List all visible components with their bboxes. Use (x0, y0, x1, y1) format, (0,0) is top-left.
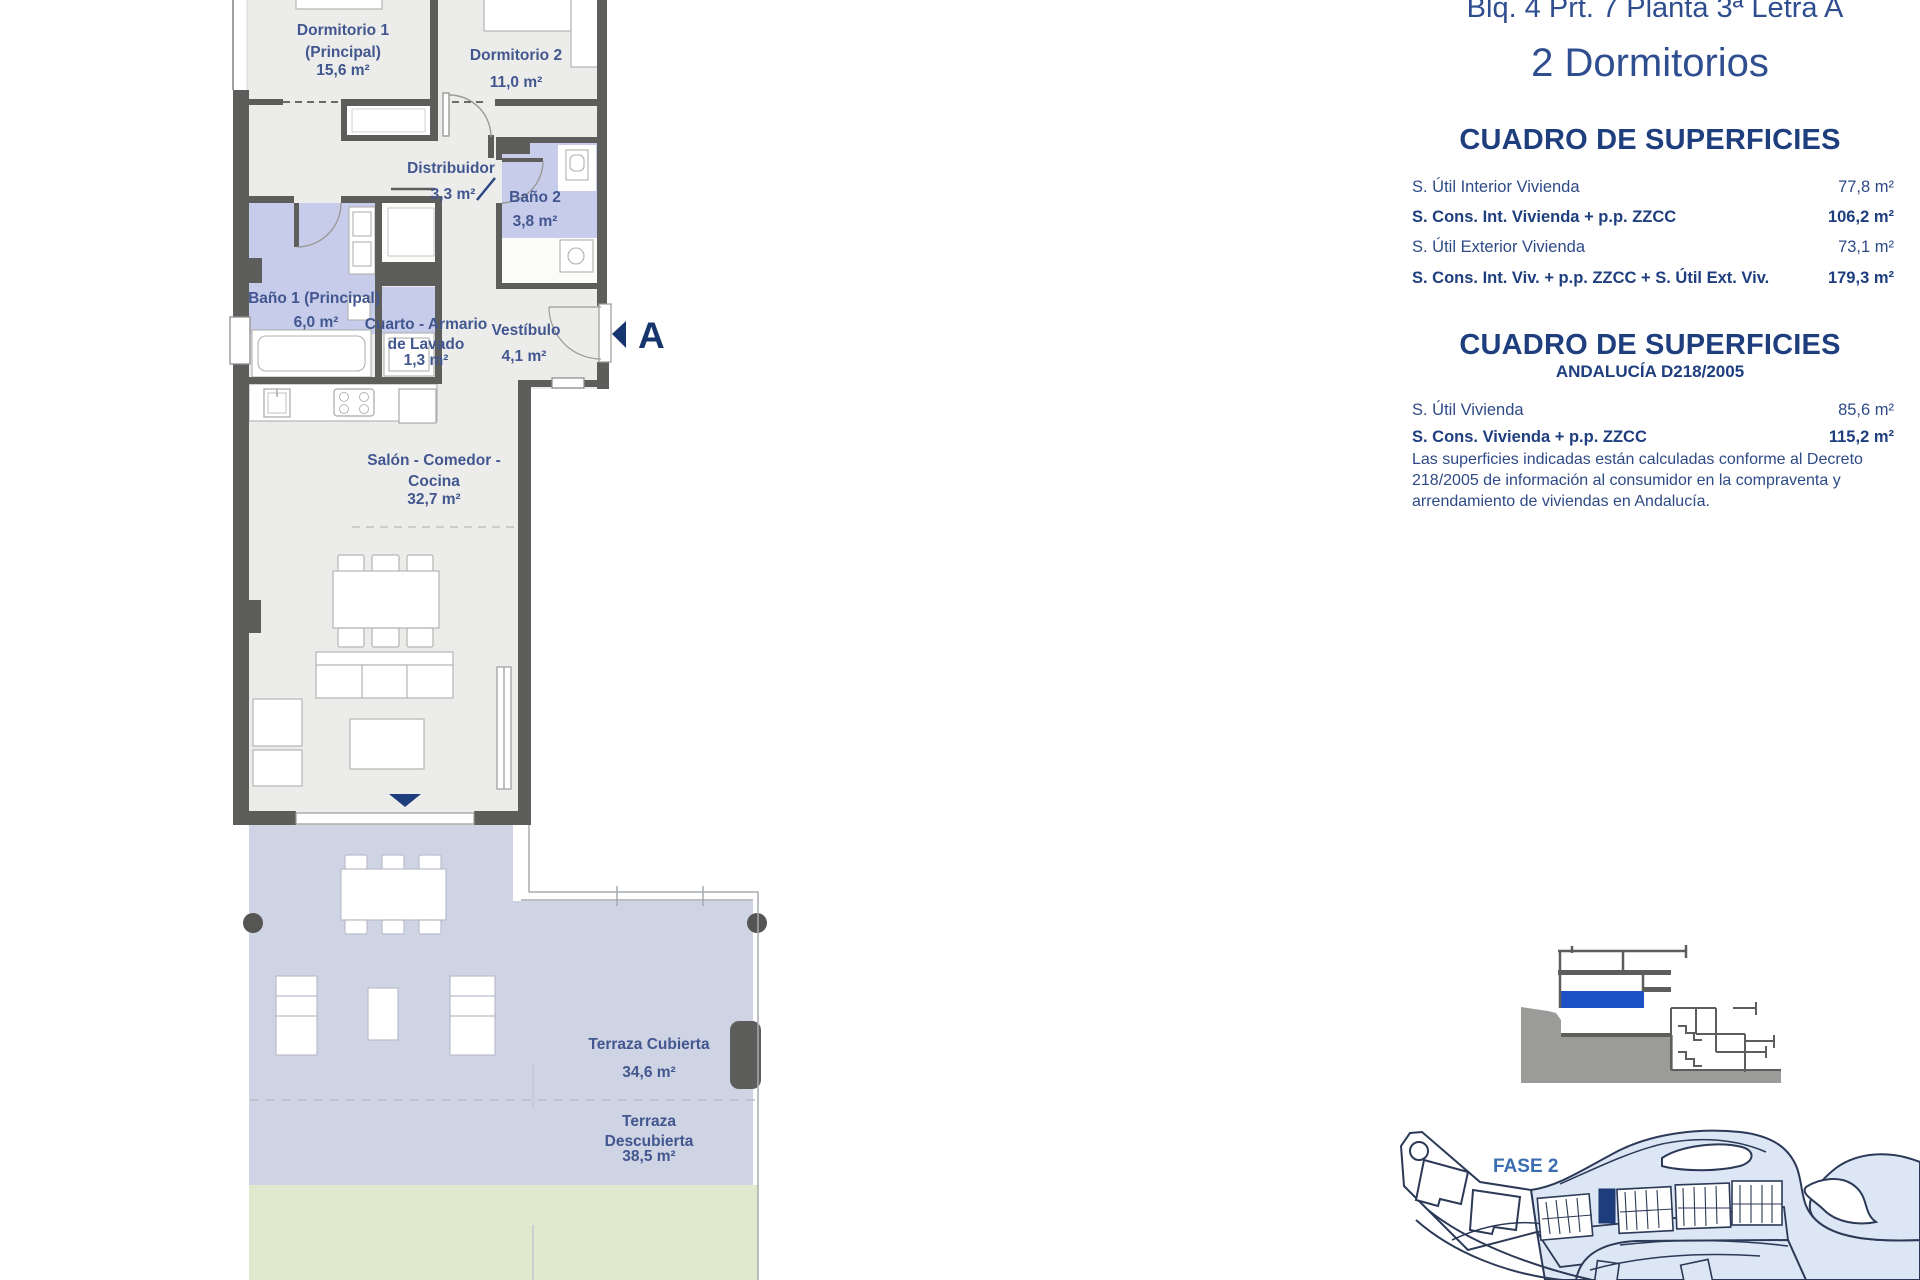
svg-text:(Principal): (Principal) (305, 44, 381, 61)
svg-text:ANDALUCÍA D218/2005: ANDALUCÍA D218/2005 (1556, 362, 1744, 381)
svg-text:S. Útil Exterior Vivienda: S. Útil Exterior Vivienda (1412, 237, 1586, 256)
svg-text:32,7 m²: 32,7 m² (407, 491, 460, 508)
svg-text:4,1 m²: 4,1 m² (502, 348, 547, 365)
svg-text:S. Cons. Vivienda + p.p. ZZCC: S. Cons. Vivienda + p.p. ZZCC (1412, 428, 1647, 446)
svg-text:Baño 2: Baño 2 (509, 189, 561, 206)
svg-text:CUADRO DE SUPERFICIES: CUADRO DE SUPERFICIES (1459, 329, 1840, 361)
svg-text:73,1 m²: 73,1 m² (1838, 238, 1894, 256)
svg-text:6,0 m²: 6,0 m² (294, 314, 339, 331)
svg-text:A: A (638, 315, 665, 356)
svg-text:Blq. 4 Prt. 7 Planta 3ª Letra: Blq. 4 Prt. 7 Planta 3ª Letra A (1467, 0, 1844, 24)
svg-text:CUADRO DE SUPERFICIES: CUADRO DE SUPERFICIES (1459, 124, 1840, 156)
svg-text:2 Dormitorios: 2 Dormitorios (1531, 41, 1769, 85)
svg-text:de Lavado: de Lavado (388, 336, 465, 353)
svg-text:179,3 m²: 179,3 m² (1828, 269, 1895, 287)
svg-text:Cuarto - Armario: Cuarto - Armario (365, 316, 488, 333)
svg-text:11,0 m²: 11,0 m² (490, 74, 543, 91)
svg-text:218/2005 de información al con: 218/2005 de información al consumidor en… (1412, 472, 1841, 489)
svg-text:Cocina: Cocina (408, 473, 460, 490)
svg-text:S. Cons. Int. Vivienda + p.p.: S. Cons. Int. Vivienda + p.p. ZZCC (1412, 208, 1676, 226)
svg-text:Vestíbulo: Vestíbulo (492, 322, 561, 339)
svg-text:S. Útil Vivienda: S. Útil Vivienda (1412, 400, 1524, 419)
svg-text:77,8 m²: 77,8 m² (1838, 178, 1894, 196)
svg-text:FASE 2: FASE 2 (1493, 1156, 1558, 1177)
svg-text:Distribuidor: Distribuidor (407, 160, 495, 177)
svg-text:Dormitorio 2: Dormitorio 2 (470, 47, 562, 64)
svg-text:85,6 m²: 85,6 m² (1838, 401, 1894, 419)
svg-text:Terraza: Terraza (622, 1113, 676, 1130)
svg-text:38,5 m²: 38,5 m² (622, 1148, 675, 1165)
svg-text:3,8 m²: 3,8 m² (513, 213, 558, 230)
svg-text:15,6 m²: 15,6 m² (316, 62, 369, 79)
svg-text:106,2 m²: 106,2 m² (1828, 208, 1895, 226)
svg-text:34,6 m²: 34,6 m² (622, 1064, 675, 1081)
svg-text:115,2 m²: 115,2 m² (1829, 428, 1895, 446)
svg-text:Salón - Comedor -: Salón - Comedor - (367, 452, 500, 469)
svg-text:S. Cons. Int. Viv. + p.p. ZZCC: S. Cons. Int. Viv. + p.p. ZZCC + S. Útil… (1412, 268, 1769, 287)
svg-text:Baño 1 (Principal): Baño 1 (Principal) (248, 290, 380, 307)
svg-text:S. Útil Interior Vivienda: S. Útil Interior Vivienda (1412, 177, 1580, 196)
svg-text:Las superficies indicadas está: Las superficies indicadas están calculad… (1412, 451, 1863, 468)
svg-text:Terraza Cubierta: Terraza Cubierta (588, 1036, 710, 1053)
svg-text:1,3 m²: 1,3 m² (404, 352, 449, 369)
svg-text:arrendamiento de viviendas en: arrendamiento de viviendas en Andalucía. (1412, 493, 1710, 510)
svg-text:3,3 m²: 3,3 m² (431, 186, 476, 203)
svg-text:Dormitorio 1: Dormitorio 1 (297, 22, 390, 39)
